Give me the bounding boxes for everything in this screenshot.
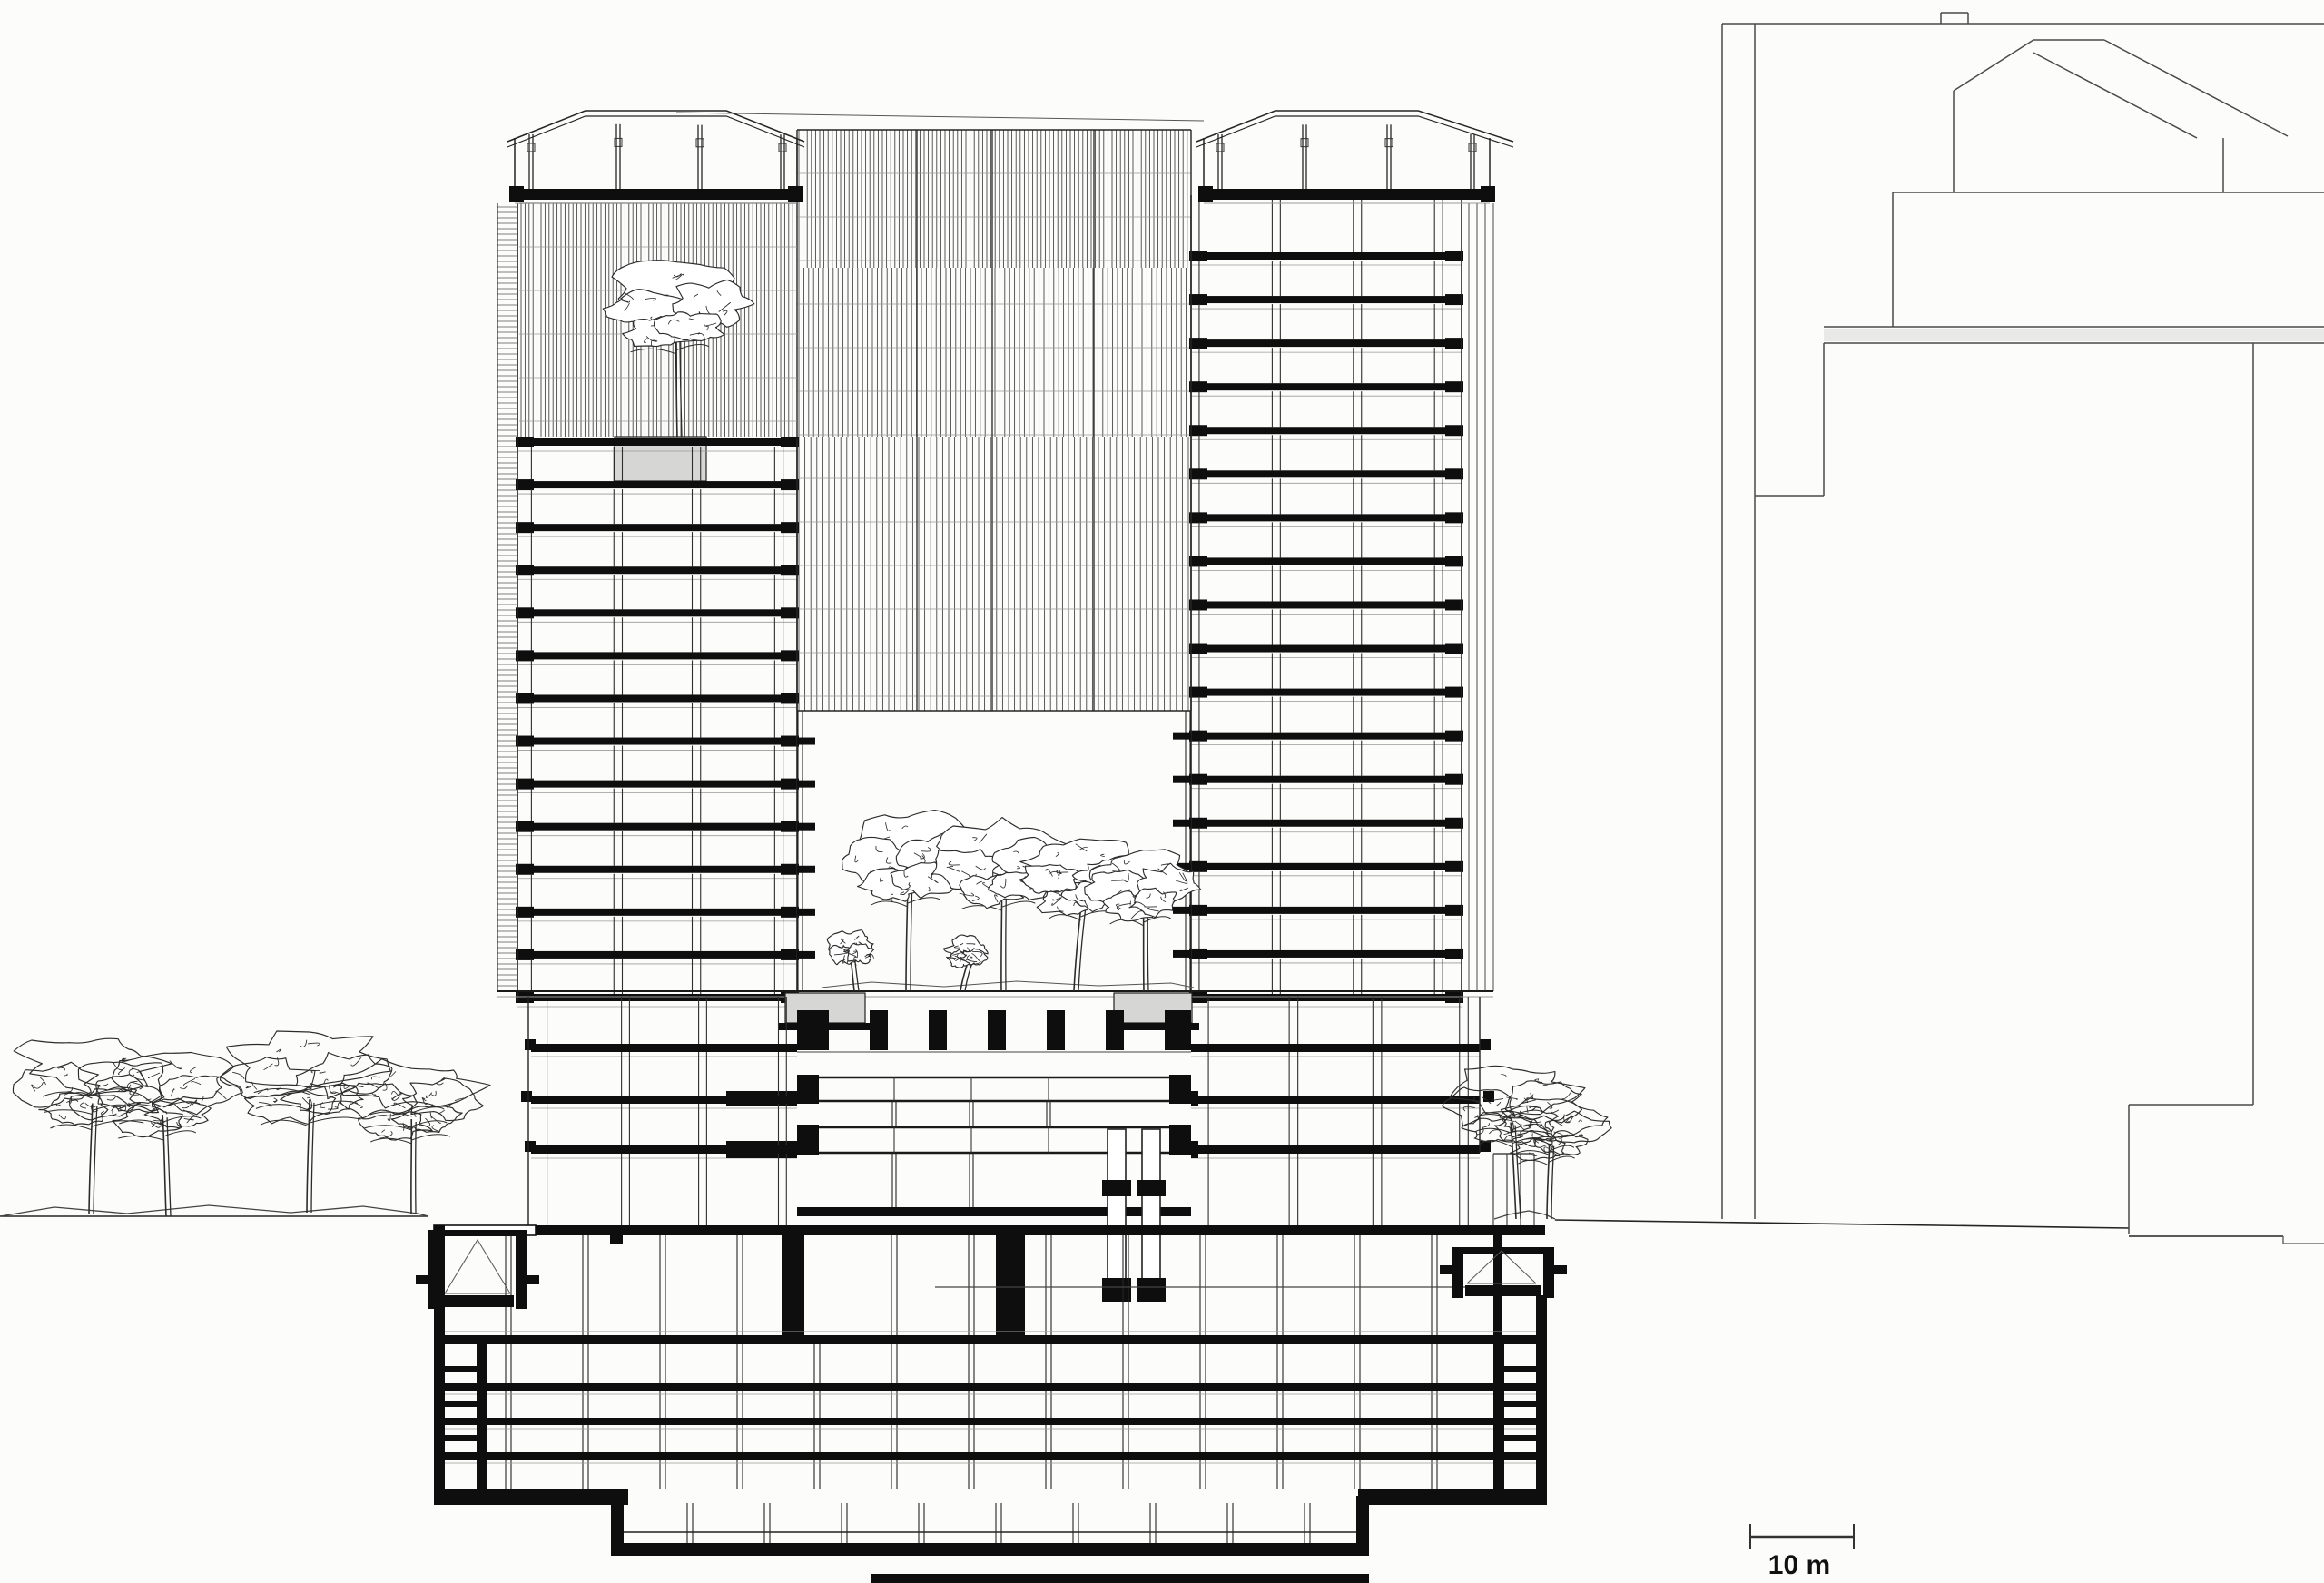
scale-bar-label: 10 m: [1768, 1550, 1830, 1580]
scale-bar: 10 m: [1750, 1524, 1854, 1580]
basement: [434, 1225, 1547, 1583]
adjacent-building: [1722, 13, 2324, 1234]
site-trees-left: [13, 1031, 490, 1216]
entry-pavilion-right: [1440, 1247, 1567, 1298]
podium-floors: [521, 997, 1534, 1225]
entry-pavilion-left: [416, 1230, 539, 1309]
terrace-garden: [497, 733, 1493, 1302]
section-sheet: 10 m: [0, 0, 2324, 1583]
main-building: [416, 111, 1567, 1583]
site-trees-right: [1443, 1066, 1612, 1219]
ground-floor: [434, 1225, 1545, 1344]
section-drawing: 10 m: [0, 0, 2324, 1583]
roof-pavilion-left: [507, 111, 804, 203]
right-tower: [1189, 195, 1493, 1007]
roof-pavilion-right: [1196, 111, 1513, 203]
